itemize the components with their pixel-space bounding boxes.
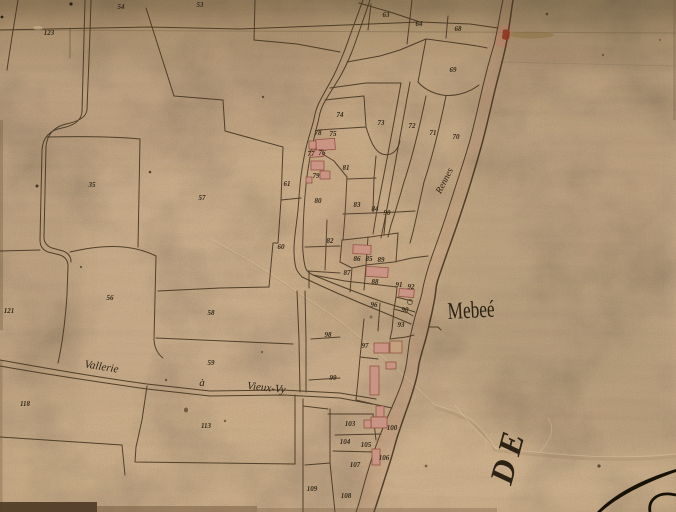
svg-text:56: 56 [107,294,115,302]
svg-text:91: 91 [396,281,403,289]
svg-text:à: à [199,377,205,389]
svg-text:121: 121 [4,307,15,315]
svg-text:69: 69 [450,66,458,74]
svg-text:77: 77 [308,150,316,158]
svg-text:83: 83 [354,201,362,209]
svg-text:107: 107 [350,461,361,469]
svg-text:96: 96 [371,301,379,309]
svg-text:54: 54 [118,3,126,11]
svg-text:75: 75 [330,130,338,138]
svg-text:81: 81 [343,164,350,172]
svg-text:105: 105 [361,441,372,449]
svg-text:109: 109 [307,485,318,493]
svg-text:99: 99 [330,374,338,382]
svg-text:35: 35 [88,181,97,189]
svg-text:118: 118 [20,400,31,408]
svg-text:Mebeé: Mebeé [447,297,495,325]
svg-text:68: 68 [455,25,463,33]
svg-text:98: 98 [325,331,333,339]
svg-text:89: 89 [378,256,386,264]
svg-text:59: 59 [208,359,216,367]
svg-text:86: 86 [354,255,362,263]
svg-text:104: 104 [340,438,351,446]
svg-text:73: 73 [378,119,386,127]
svg-text:82: 82 [327,237,335,245]
svg-text:72: 72 [409,122,417,130]
svg-text:57: 57 [199,194,207,202]
svg-text:71: 71 [430,129,437,137]
svg-text:100: 100 [387,424,398,432]
svg-text:63: 63 [383,11,391,19]
svg-text:106: 106 [379,454,390,462]
svg-text:70: 70 [453,133,461,141]
svg-text:93: 93 [398,321,406,329]
svg-text:113: 113 [201,422,212,430]
svg-text:74: 74 [337,111,345,119]
svg-text:58: 58 [208,309,216,317]
svg-text:84: 84 [372,205,380,213]
svg-text:90: 90 [384,209,392,217]
svg-text:60: 60 [278,243,286,251]
svg-text:97: 97 [362,342,370,350]
svg-text:90: 90 [402,306,410,314]
svg-text:87: 87 [344,269,352,277]
svg-text:78: 78 [315,129,323,137]
svg-text:64: 64 [416,20,424,28]
svg-text:79: 79 [313,172,321,180]
svg-text:80: 80 [315,197,323,205]
svg-text:123: 123 [44,29,55,37]
svg-text:61: 61 [284,180,291,188]
svg-text:85: 85 [366,255,374,263]
svg-text:103: 103 [345,420,356,428]
svg-text:76: 76 [319,149,327,157]
svg-text:88: 88 [372,278,380,286]
svg-text:92: 92 [408,283,416,291]
svg-text:53: 53 [197,1,205,9]
svg-text:108: 108 [341,492,352,500]
